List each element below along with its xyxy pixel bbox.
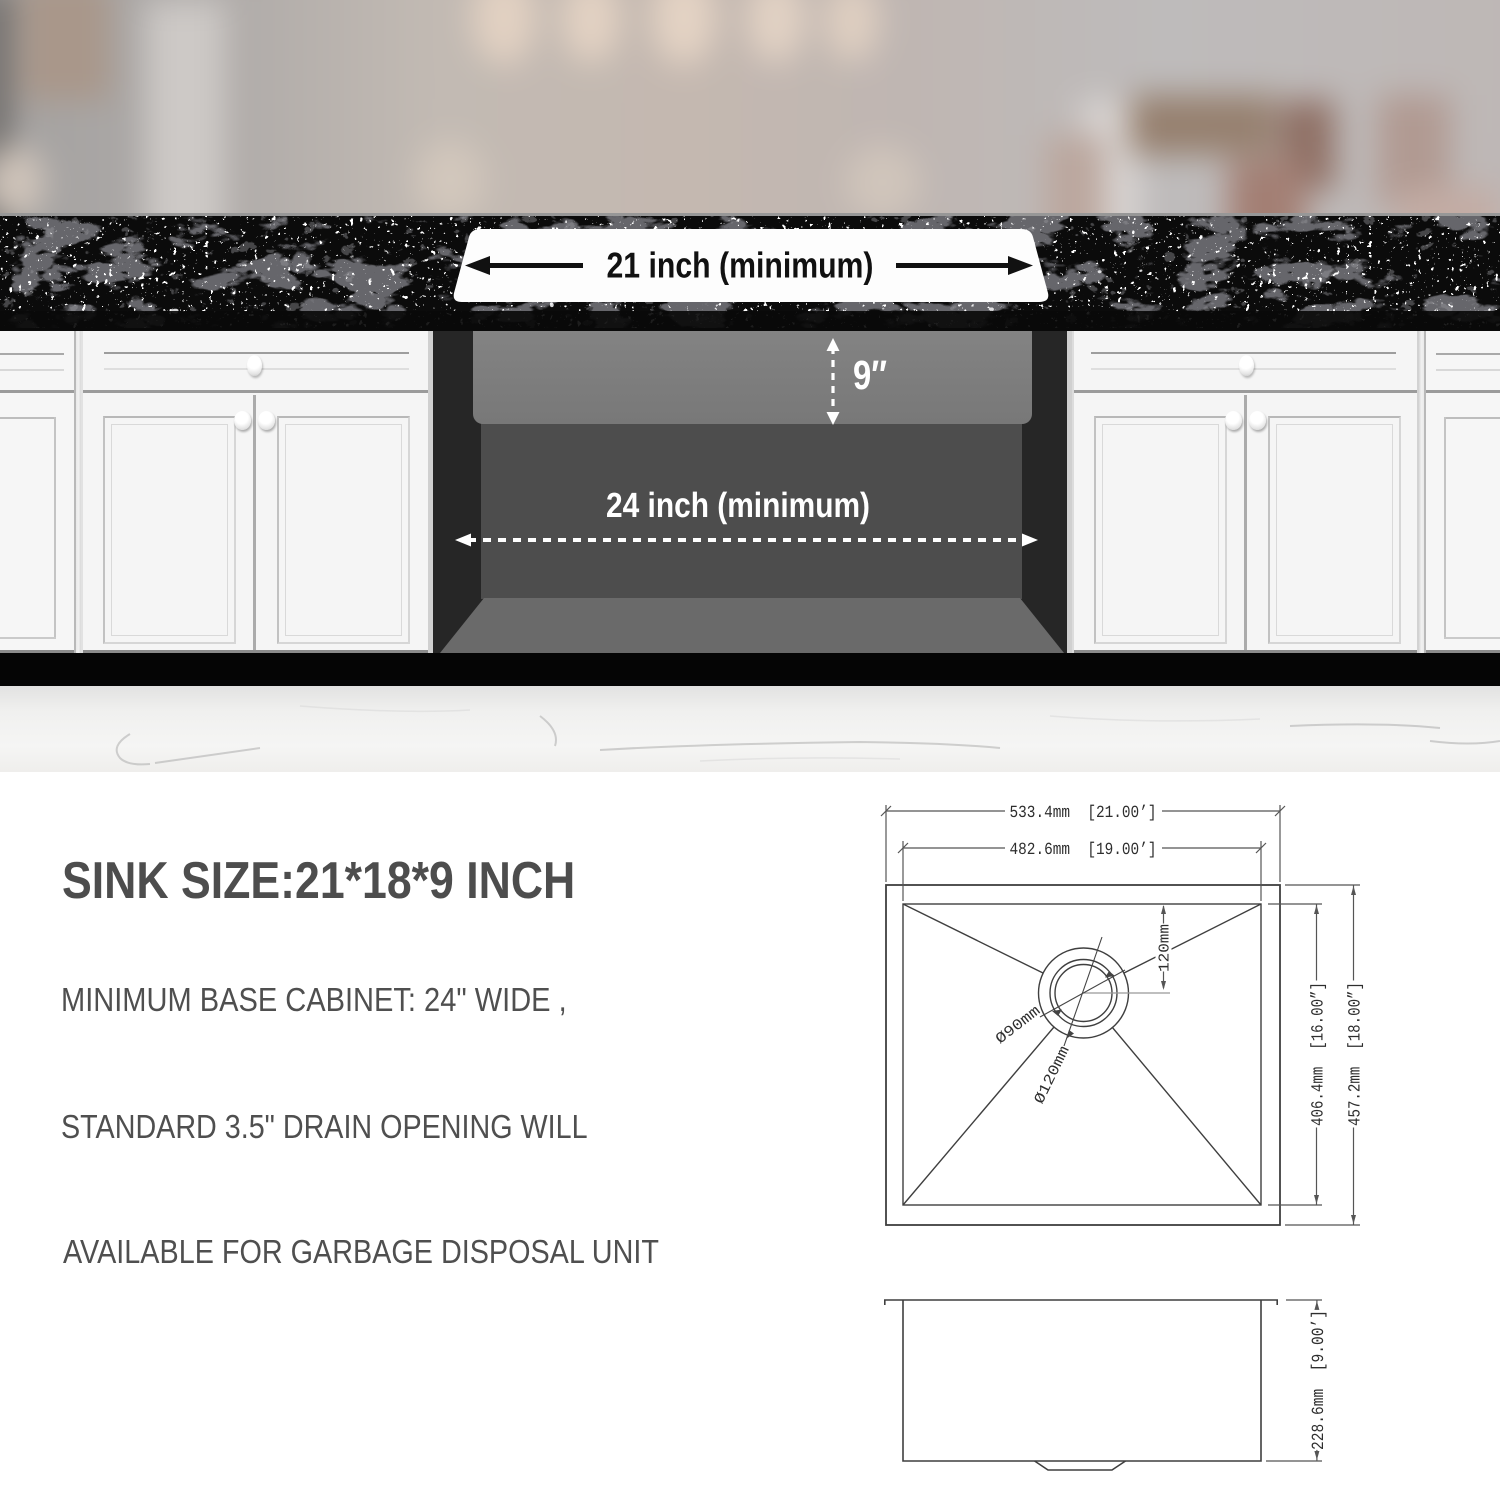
svg-text:228.6mm [9.00’]: 228.6mm [9.00’] — [1310, 1310, 1329, 1450]
svg-text:24 inch (minimum): 24 inch (minimum) — [606, 486, 870, 525]
svg-text:21 inch (minimum): 21 inch (minimum) — [607, 245, 874, 286]
svg-text:533.4mm [21.00’]: 533.4mm [21.00’] — [1010, 804, 1157, 823]
svg-text:120mm: 120mm — [1157, 924, 1174, 972]
svg-text:482.6mm [19.00’]: 482.6mm [19.00’] — [1010, 841, 1157, 860]
svg-text:457.2mm [18.00”]: 457.2mm [18.00”] — [1347, 982, 1366, 1126]
svg-text:Ø90mm: Ø90mm — [993, 1003, 1044, 1048]
svg-text:406.4mm [16.00”]: 406.4mm [16.00”] — [1310, 982, 1329, 1126]
svg-text:Ø120mm: Ø120mm — [1031, 1044, 1073, 1107]
